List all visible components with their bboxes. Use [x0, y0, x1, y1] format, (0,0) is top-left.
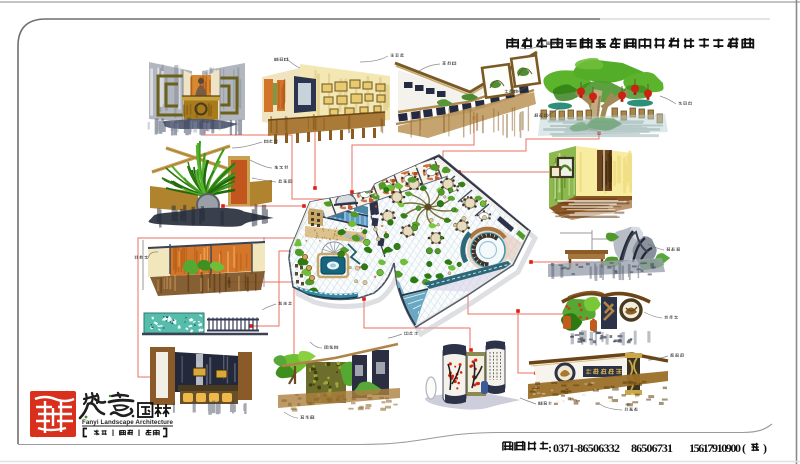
svg-text:(: ( [742, 441, 746, 455]
svg-text:0371-86506332: 0371-86506332 [553, 441, 620, 455]
svg-text:15617910900: 15617910900 [689, 441, 741, 455]
svg-text:Fanyi Landscape Architecture: Fanyi Landscape Architecture [82, 419, 174, 426]
svg-text:86506731: 86506731 [631, 441, 673, 455]
svg-text::: : [548, 441, 552, 455]
svg-text:): ) [763, 441, 767, 455]
